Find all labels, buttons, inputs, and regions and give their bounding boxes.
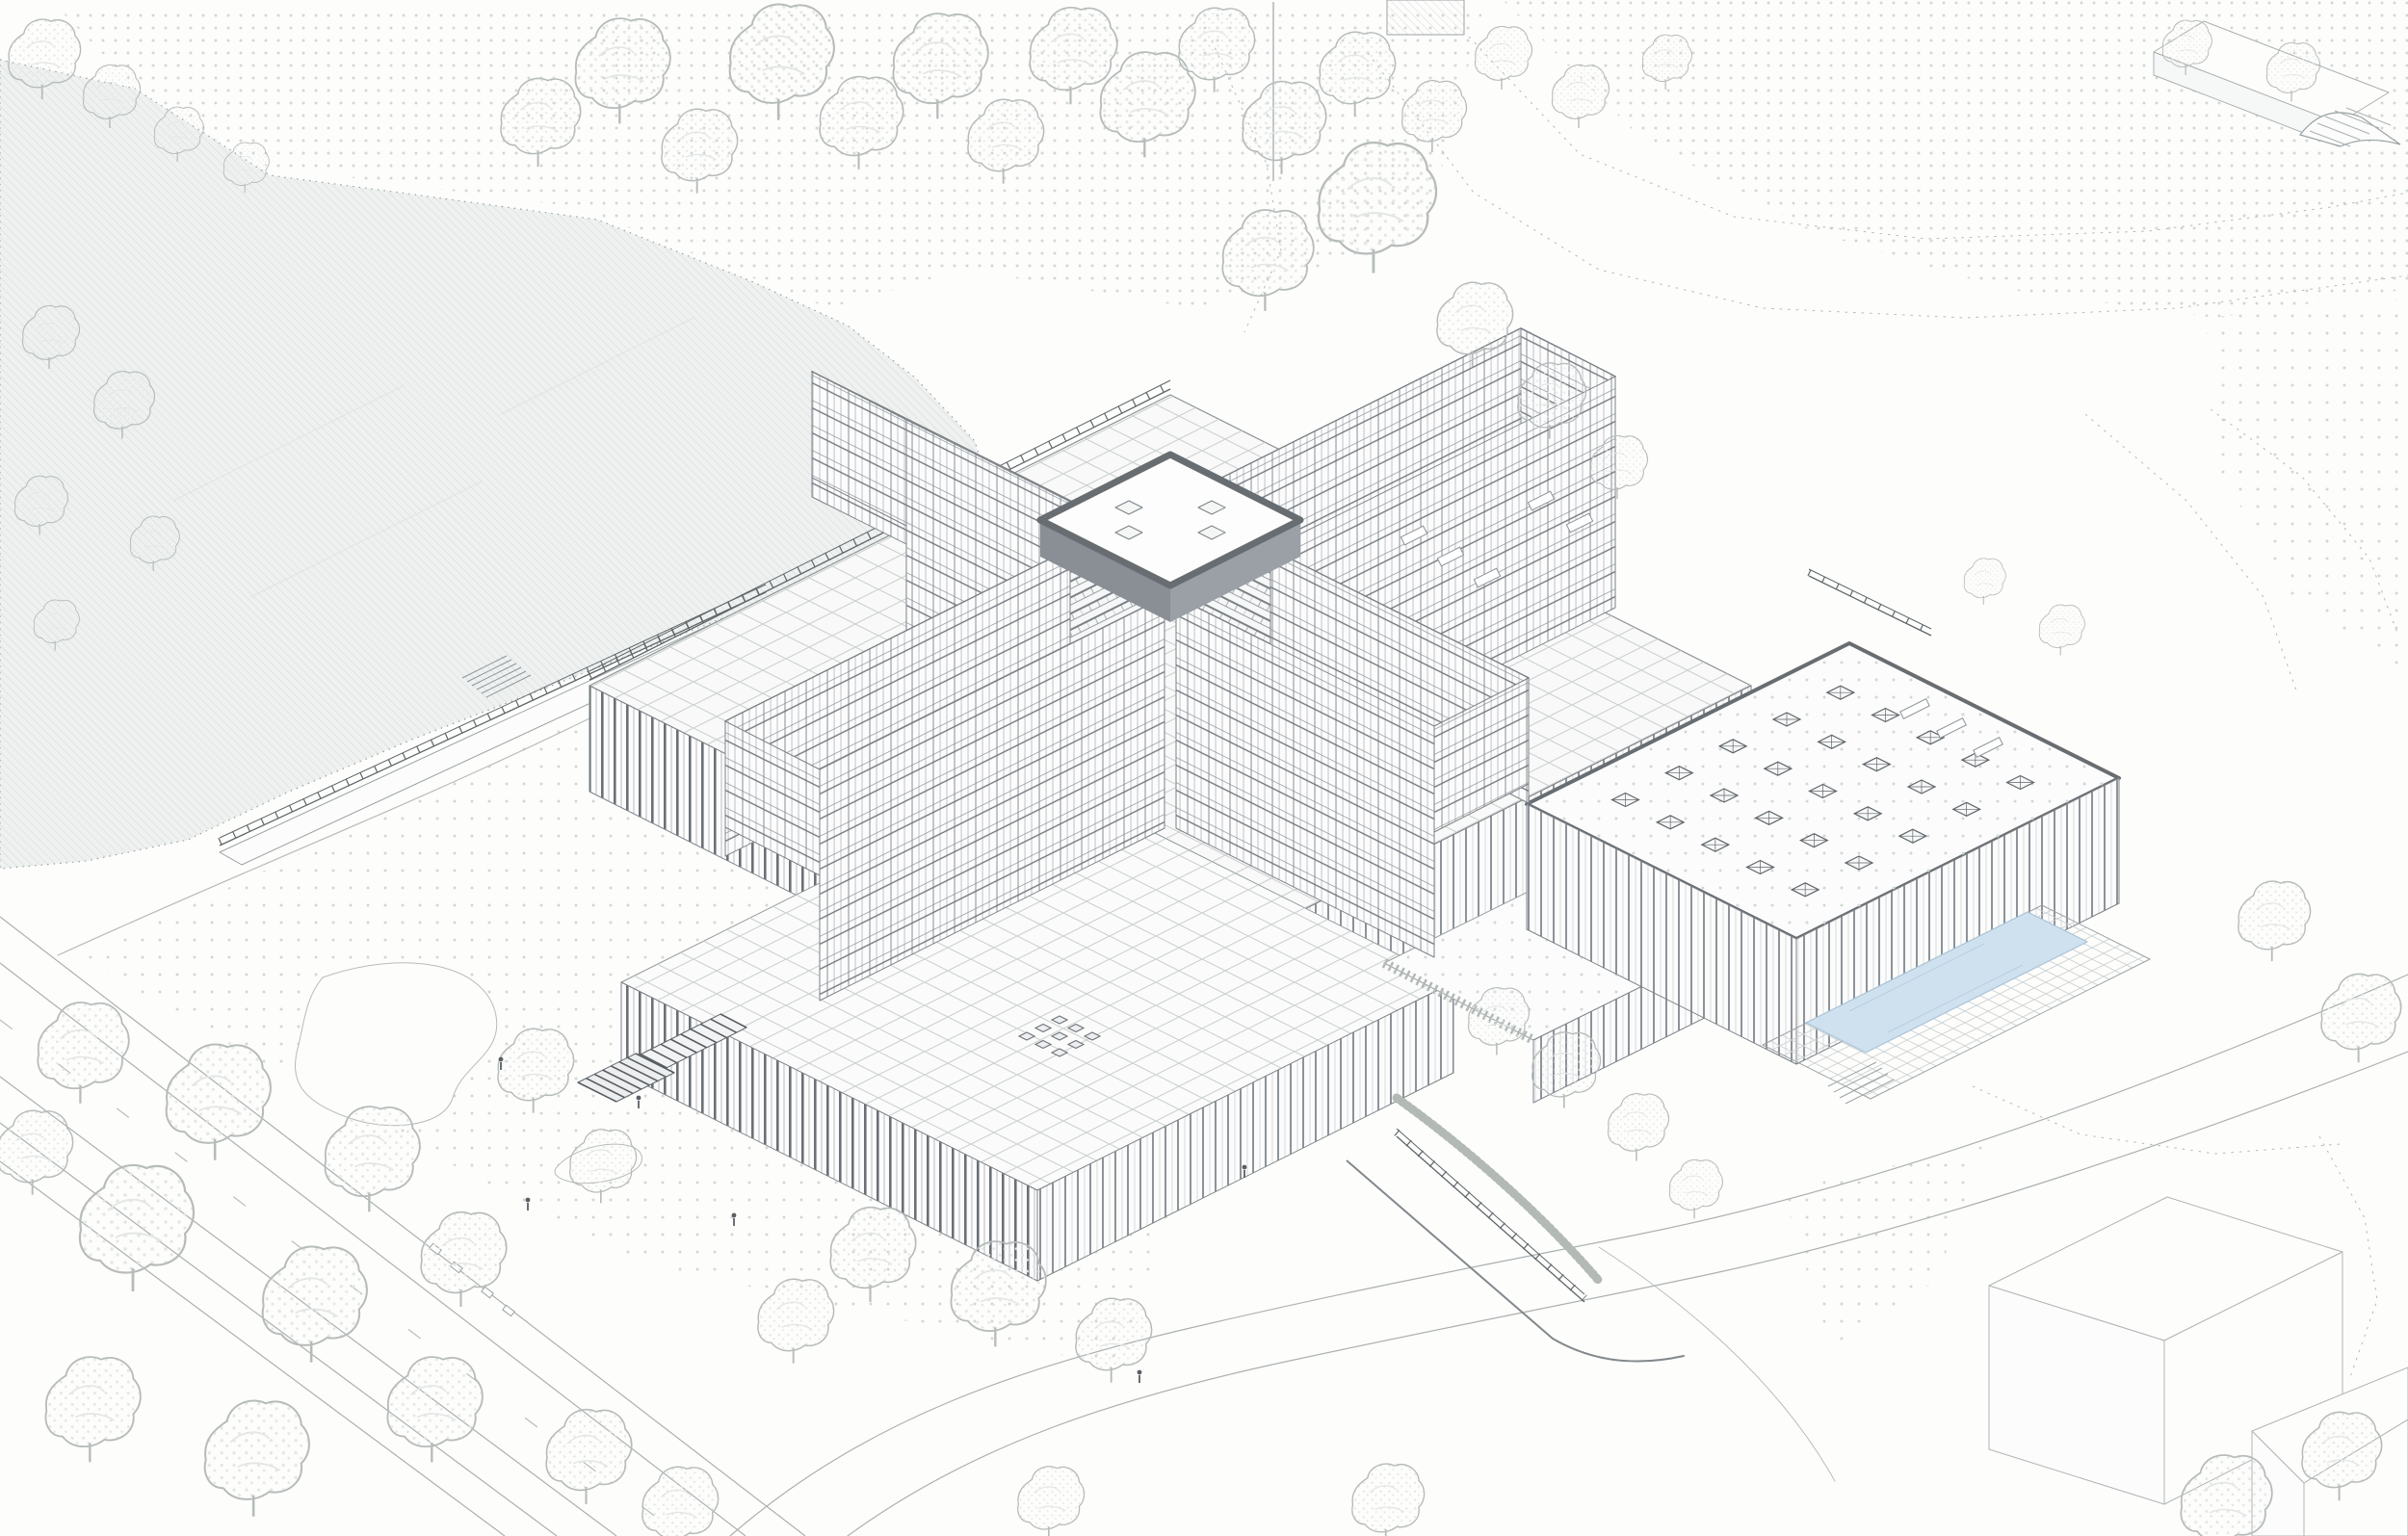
ramp-curve [1553, 1339, 1684, 1362]
site-axonometric-drawing [0, 0, 2408, 1536]
hall-ne-path-railing [1809, 569, 1931, 636]
ramp-wall-upper [1397, 1129, 1584, 1302]
contour-6 [1973, 1086, 2341, 1154]
ramp-hedge [1397, 1098, 1599, 1281]
ramp-wall-lower [1347, 1160, 1553, 1339]
rooftop-topedge [1387, 0, 1464, 35]
terrain-rightmid-dots [2206, 299, 2408, 674]
axonometric-site-plan [0, 0, 2408, 1536]
road-branch [1599, 1247, 1835, 1481]
terrain-bottomright-dots [1782, 1146, 1984, 1348]
